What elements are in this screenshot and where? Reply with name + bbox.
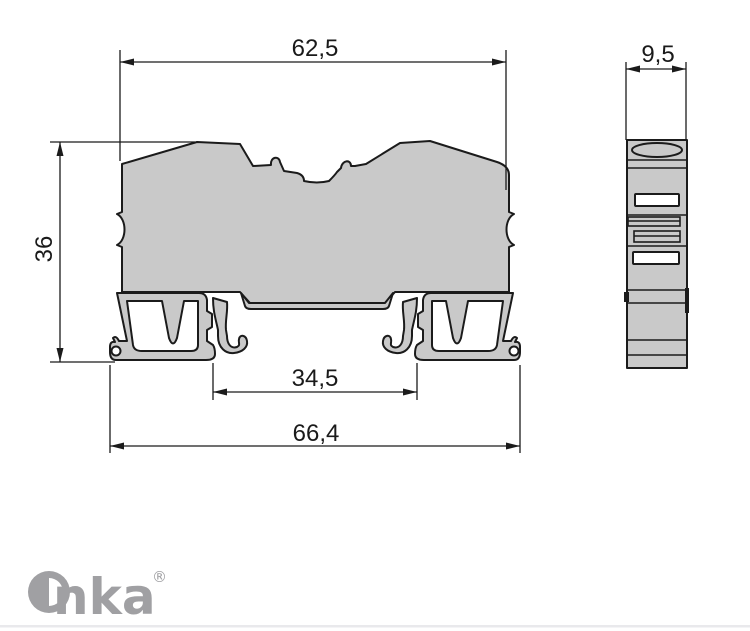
- latch-bar-upper: [628, 217, 680, 226]
- drawing-page: 62,5 36 34,5 66,4: [0, 0, 750, 631]
- latch-bar-lower: [634, 231, 680, 242]
- dimension-label-bottom-width: 66,4: [293, 420, 340, 447]
- foot-cutout: [127, 301, 198, 351]
- logo-wordmark: nka: [53, 568, 156, 626]
- registered-trademark-icon: ®: [152, 568, 167, 586]
- din-rail-clip: [213, 298, 247, 353]
- dimension-label-rail-opening: 34,5: [292, 365, 339, 392]
- bottom-divider: [0, 625, 750, 628]
- dimension-label-height: 36: [31, 236, 58, 263]
- dimension-label-top-width: 62,5: [292, 35, 339, 62]
- terminal-body-outline: [117, 141, 514, 303]
- left-mounting-foot: [110, 293, 247, 360]
- dimension-side-width: 9,5: [626, 41, 686, 140]
- right-mounting-foot: [383, 293, 520, 360]
- side-right-edge-mark: [685, 288, 689, 313]
- side-view: [624, 140, 689, 368]
- foot-hook-curl: [112, 347, 121, 356]
- wire-entry-ellipse: [632, 143, 682, 157]
- technical-drawing: 62,5 36 34,5 66,4: [0, 0, 750, 631]
- front-view: [110, 141, 520, 360]
- dimension-label-side-width: 9,5: [641, 41, 674, 68]
- marking-slot-lower: [633, 252, 679, 264]
- marking-slot-upper: [635, 194, 679, 206]
- side-left-tick: [624, 292, 629, 302]
- onka-logo: nka ®: [28, 568, 167, 626]
- dimension-rail-opening: 34,5: [213, 363, 417, 400]
